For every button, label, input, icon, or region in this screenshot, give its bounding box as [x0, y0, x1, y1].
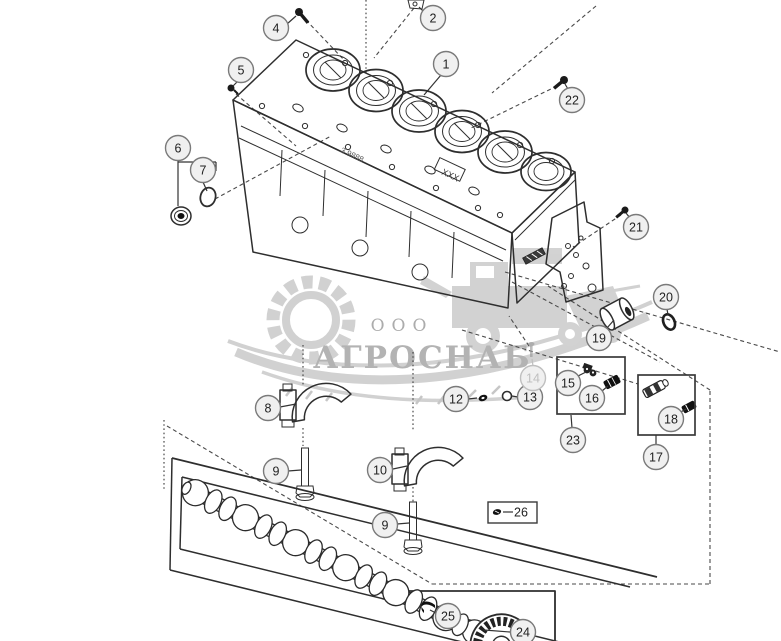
- deck-holes: [259, 52, 554, 217]
- svg-text:22: 22: [565, 94, 579, 108]
- fitting-17: [642, 378, 670, 398]
- svg-text:16: 16: [585, 392, 599, 406]
- callout-21[interactable]: 21: [624, 213, 649, 240]
- svg-text:13: 13: [523, 391, 537, 405]
- fitting-15: [582, 363, 596, 377]
- o-ring-7: [198, 186, 217, 208]
- svg-text:1: 1: [443, 58, 450, 72]
- parts-diagram: ООО АГРОСНАБ: [0, 0, 781, 641]
- callout-5[interactable]: 5: [229, 58, 254, 87]
- projection-line: [306, 20, 345, 61]
- svg-text:12: 12: [449, 393, 463, 407]
- svg-text:4: 4: [273, 22, 280, 36]
- block-stamp-serial: 3 9888: [339, 146, 365, 165]
- callout-2[interactable]: 2: [419, 6, 446, 31]
- callout-12[interactable]: 12: [444, 387, 478, 412]
- svg-text:14: 14: [526, 372, 540, 386]
- svg-text:25: 25: [441, 610, 455, 624]
- svg-text:19: 19: [592, 332, 606, 346]
- camshaft-24: [169, 459, 543, 641]
- watermark-ooo-text: ООО: [371, 316, 434, 336]
- callout-23[interactable]: 23: [561, 415, 586, 453]
- plug-5: [228, 85, 239, 95]
- callout-6[interactable]: 6: [166, 136, 191, 161]
- callout-16[interactable]: 16: [580, 386, 609, 411]
- watermark-company-text: АГРОСНАБ: [313, 340, 532, 376]
- svg-text:21: 21: [629, 221, 643, 235]
- projection-line: [215, 136, 331, 199]
- svg-text:2: 2: [430, 12, 437, 26]
- camshaft-panel: [170, 458, 657, 641]
- svg-text:18: 18: [664, 413, 678, 427]
- callout-9[interactable]: 9: [264, 459, 302, 484]
- block-stamp-xxx: XXX: [440, 167, 461, 184]
- projection-line: [374, 8, 414, 58]
- projection-line: [573, 215, 621, 247]
- callout-4[interactable]: 4: [264, 16, 297, 41]
- callout-17[interactable]: 17: [644, 435, 669, 470]
- projection-line: [471, 86, 557, 128]
- watermark: ООО АГРОСНАБ: [228, 248, 652, 404]
- svg-text:6: 6: [175, 142, 182, 156]
- callout-7[interactable]: 7: [191, 158, 216, 192]
- parts-diagram-canvas: ООО АГРОСНАБ: [0, 0, 781, 641]
- snap-ring-20: [661, 312, 678, 331]
- svg-text:15: 15: [561, 377, 575, 391]
- svg-text:23: 23: [566, 434, 580, 448]
- bearing-cap-bolt-9b: [404, 502, 422, 555]
- fastener-2: [408, 0, 424, 9]
- svg-text:24: 24: [516, 626, 530, 640]
- engine-block: XXX 3 9888: [233, 40, 603, 308]
- svg-text:7: 7: [200, 164, 207, 178]
- svg-text:10: 10: [373, 464, 387, 478]
- callout-8[interactable]: 8: [256, 396, 297, 421]
- svg-text:26: 26: [514, 506, 528, 520]
- svg-text:17: 17: [649, 451, 663, 465]
- projection-line: [492, 6, 596, 93]
- ring-13: [503, 392, 512, 401]
- callout-20[interactable]: 20: [654, 285, 679, 316]
- callout-10[interactable]: 10: [368, 458, 408, 483]
- cup-plug-6: [171, 207, 191, 225]
- callout-18[interactable]: 18: [659, 407, 687, 432]
- svg-text:9: 9: [273, 465, 280, 479]
- callout-22[interactable]: 22: [560, 84, 585, 113]
- svg-text:9: 9: [382, 519, 389, 533]
- main-bearing-cap-10: [392, 447, 463, 491]
- svg-text:5: 5: [238, 64, 245, 78]
- callout-9[interactable]: 9: [373, 513, 410, 538]
- svg-text:8: 8: [265, 402, 272, 416]
- svg-text:20: 20: [659, 291, 673, 305]
- callout-1[interactable]: 1: [424, 52, 459, 96]
